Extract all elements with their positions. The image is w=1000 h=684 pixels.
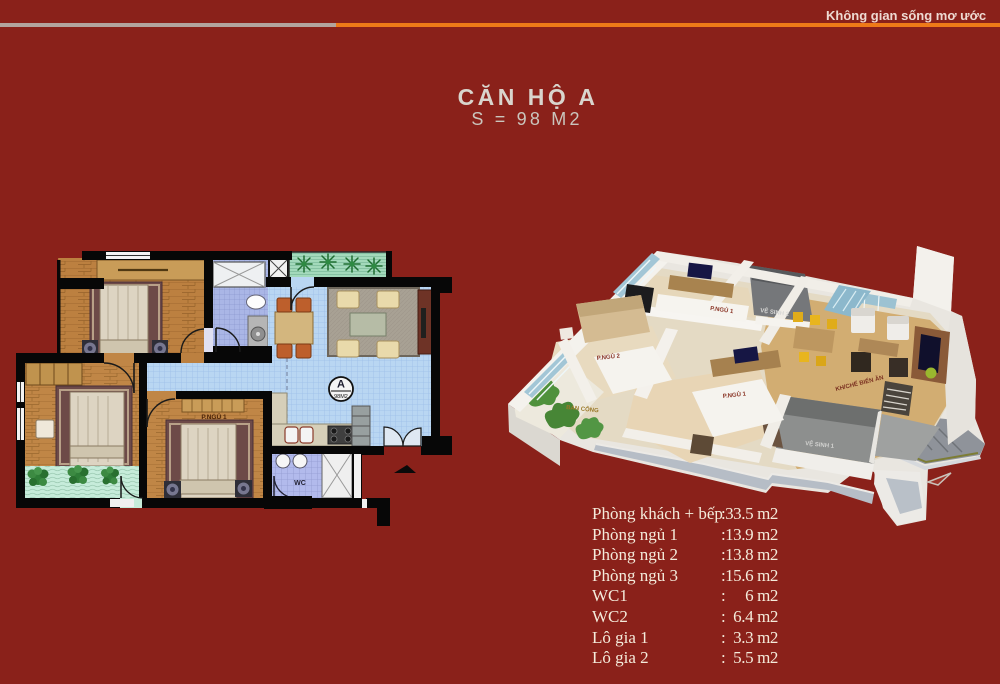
- svg-text:P.NGỦ 1: P.NGỦ 1: [201, 412, 227, 421]
- svg-text:A: A: [337, 379, 345, 391]
- svg-text:WC: WC: [294, 480, 306, 487]
- svg-text:98M2: 98M2: [334, 394, 348, 400]
